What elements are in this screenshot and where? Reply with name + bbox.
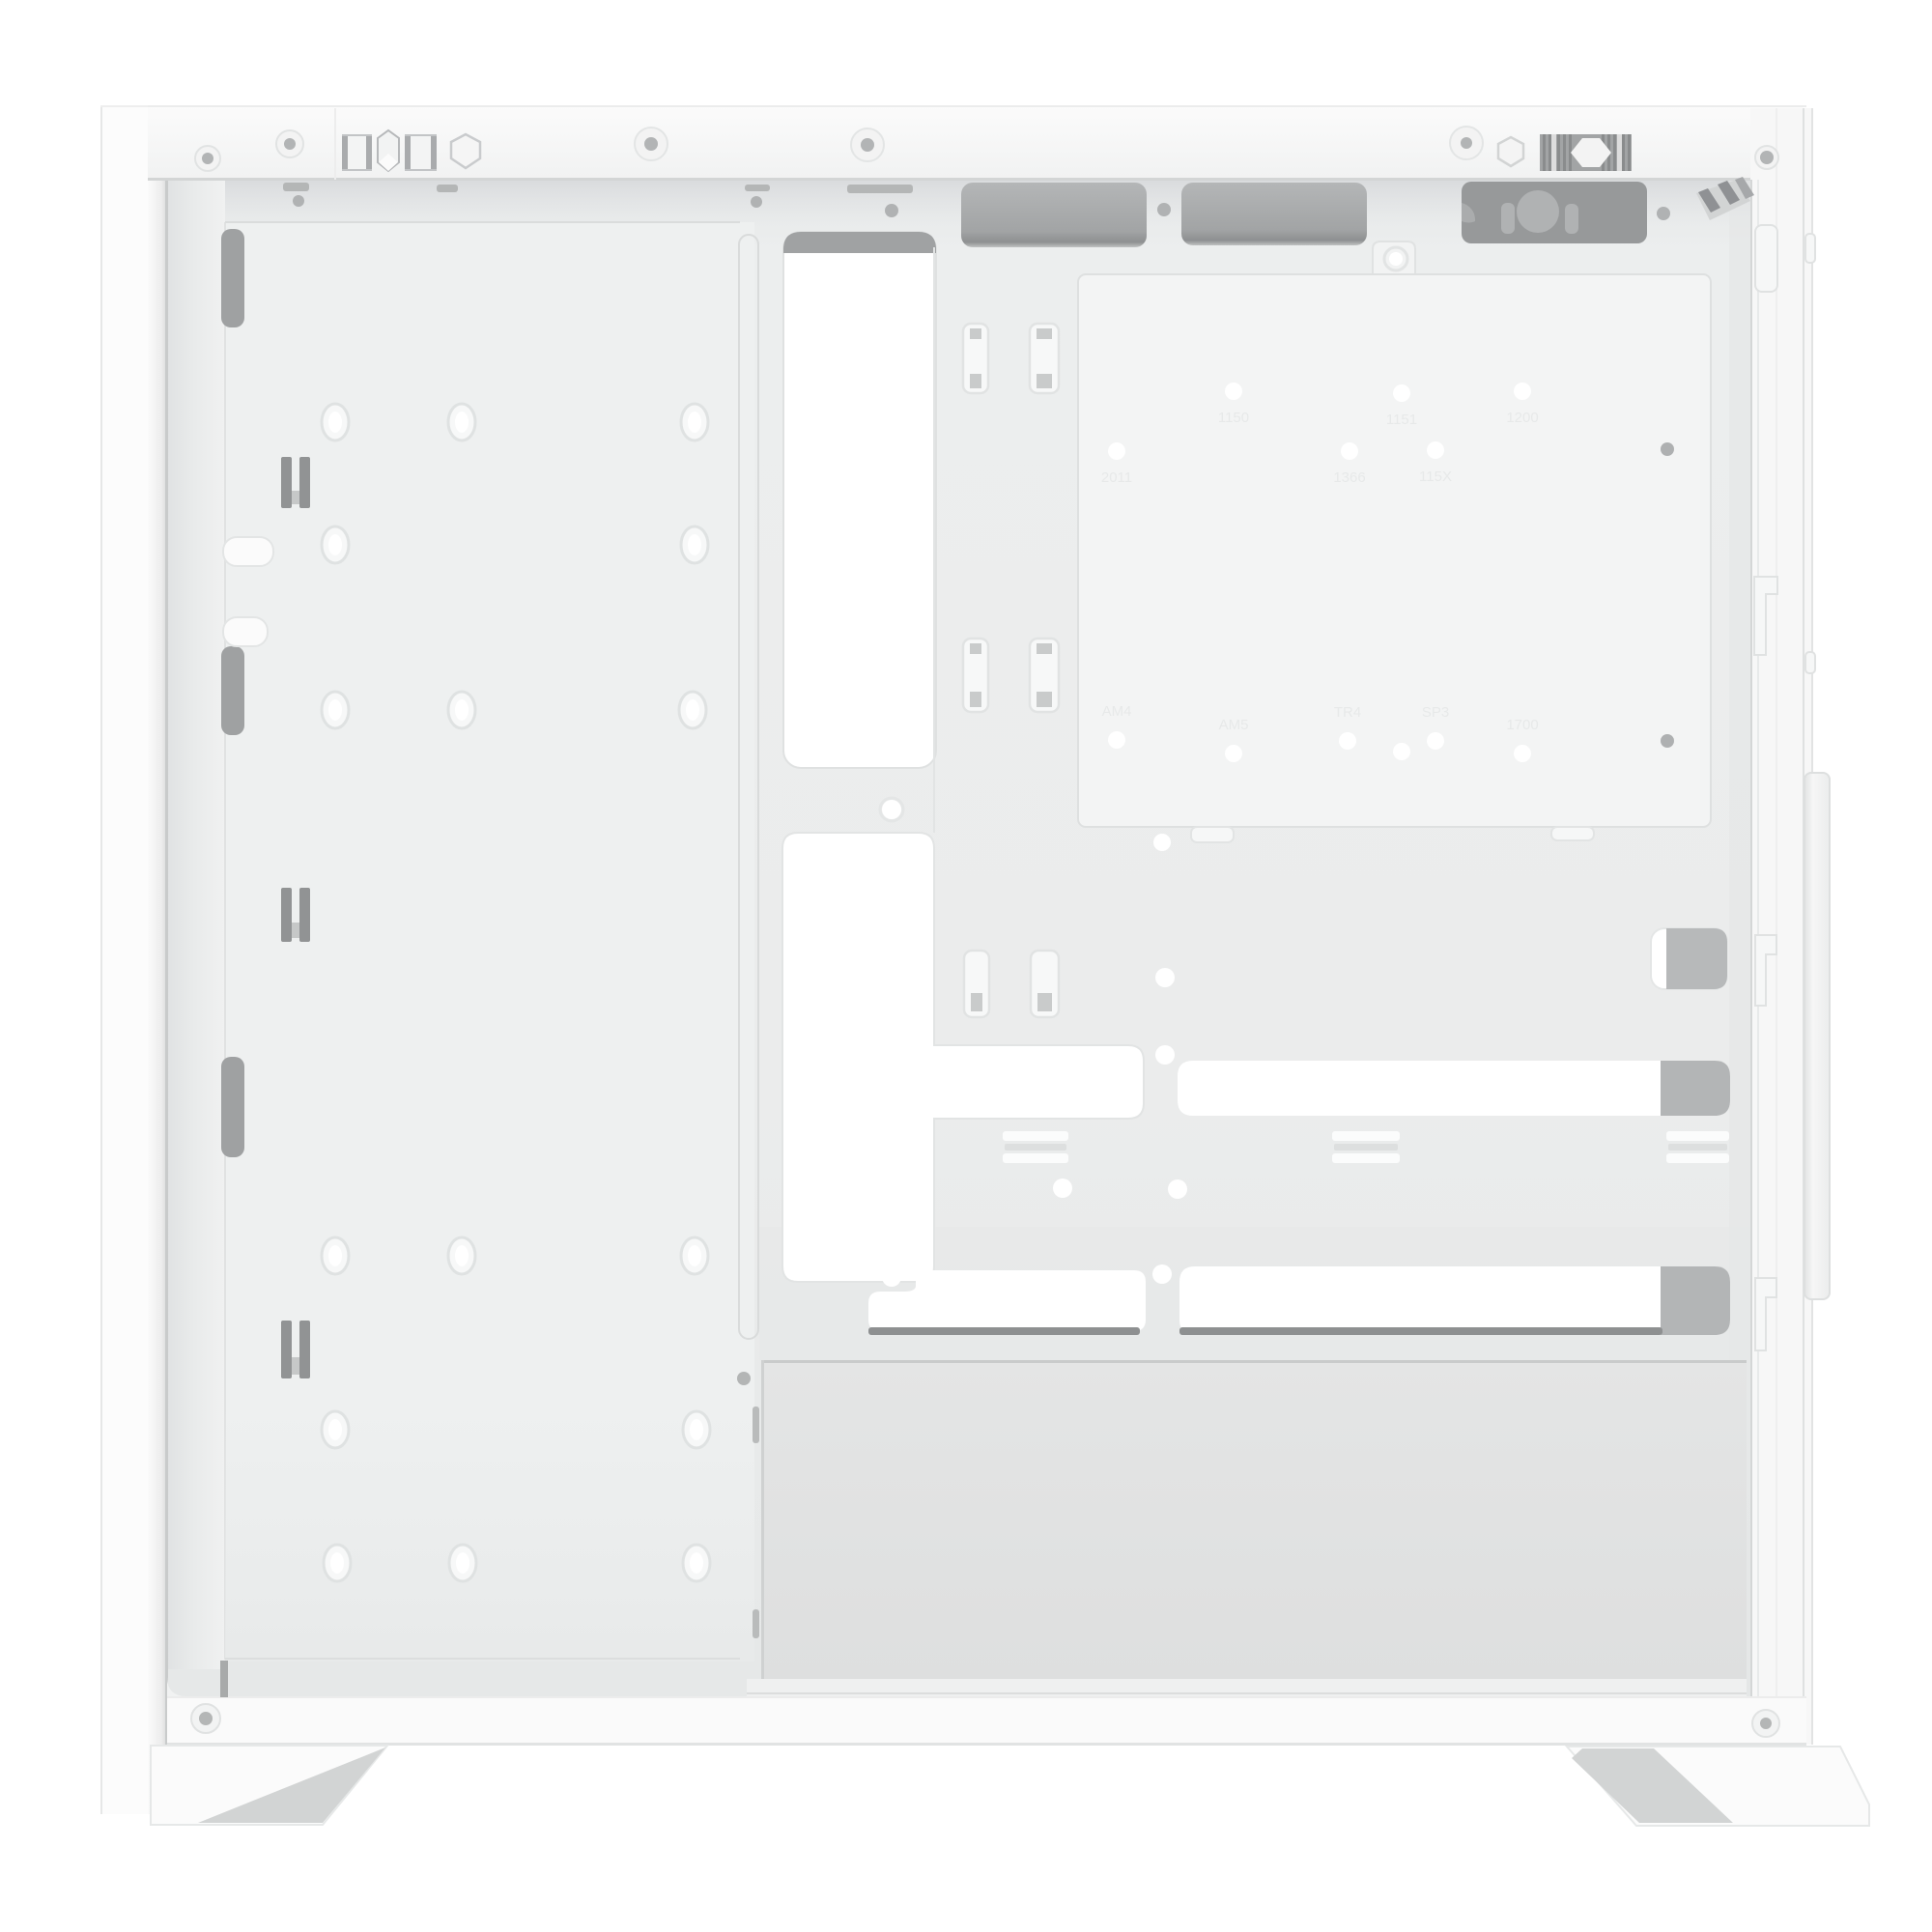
svg-text:AM4: AM4	[1102, 703, 1132, 720]
svg-text:1366: 1366	[1333, 469, 1365, 486]
svg-text:1150: 1150	[1218, 410, 1249, 426]
svg-text:TR4: TR4	[1334, 704, 1361, 721]
svg-text:2011: 2011	[1101, 469, 1132, 486]
svg-text:SP3: SP3	[1422, 704, 1449, 721]
svg-text:1700: 1700	[1506, 717, 1538, 733]
svg-text:1151: 1151	[1386, 412, 1417, 428]
svg-text:115X: 115X	[1419, 469, 1452, 485]
svg-text:AM5: AM5	[1219, 717, 1249, 733]
svg-text:1200: 1200	[1506, 410, 1538, 426]
